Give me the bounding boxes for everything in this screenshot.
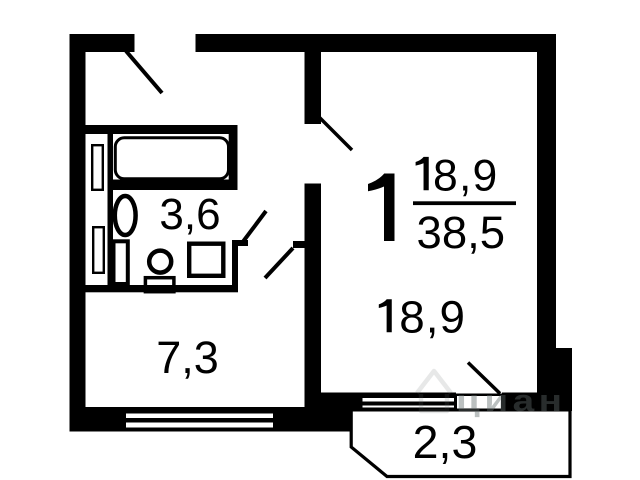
svg-text:8,9: 8,9 [433, 151, 498, 200]
svg-text:8,9: 8,9 [399, 291, 466, 342]
svg-text:7,3: 7,3 [156, 332, 219, 383]
svg-text:3,6: 3,6 [159, 190, 220, 239]
svg-text:циан: циан [456, 384, 567, 418]
svg-text:2,3: 2,3 [413, 416, 478, 468]
svg-text:38,5: 38,5 [417, 207, 506, 258]
